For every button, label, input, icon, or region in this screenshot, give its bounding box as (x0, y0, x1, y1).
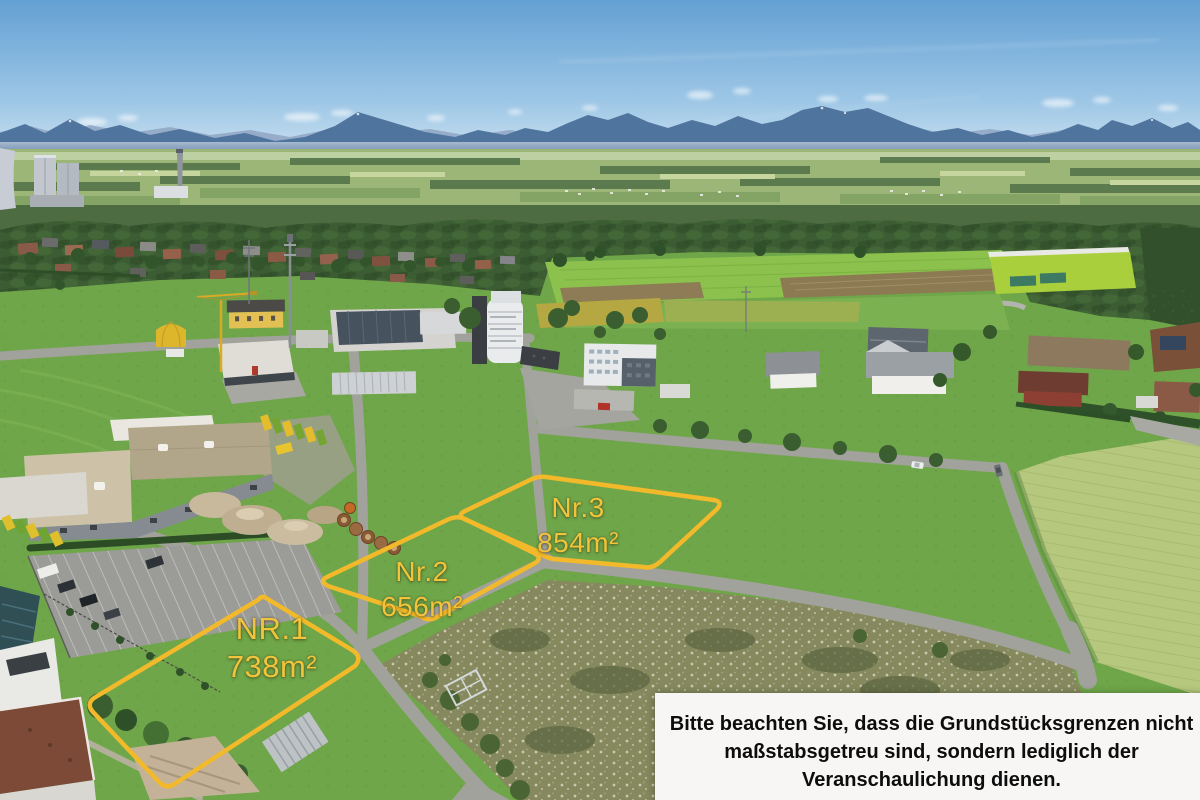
cooling-tower (0, 148, 16, 210)
disclaimer-line: maßstabsgetreu sind, sondern lediglich d… (655, 738, 1200, 766)
chalet (1150, 322, 1200, 372)
red-house (1017, 371, 1088, 407)
long-house (1027, 335, 1130, 370)
storage-units (332, 371, 416, 394)
disclaimer-line: Veranschaulichung dienen. (655, 766, 1200, 794)
guesthouse (227, 299, 285, 328)
tennis-court (1040, 273, 1066, 284)
aerial-photo: NR.1 738m² Nr.2 656m² Nr.3 854m² Bitte b… (0, 0, 1200, 800)
loading-canopy (0, 472, 88, 520)
flat-roof-building (0, 698, 96, 800)
office-building (584, 343, 657, 386)
red-car (598, 403, 610, 410)
disclaimer-box: Bitte beachten Sie, dass die Grundstücks… (655, 693, 1200, 800)
tennis-court (1010, 276, 1036, 287)
truck (166, 349, 184, 357)
disclaimer-line: Bitte beachten Sie, dass die Grundstücks… (655, 710, 1200, 738)
aerial-photo-illustration (0, 0, 1200, 800)
tower-building (472, 291, 523, 364)
showroom-hall (218, 340, 295, 386)
